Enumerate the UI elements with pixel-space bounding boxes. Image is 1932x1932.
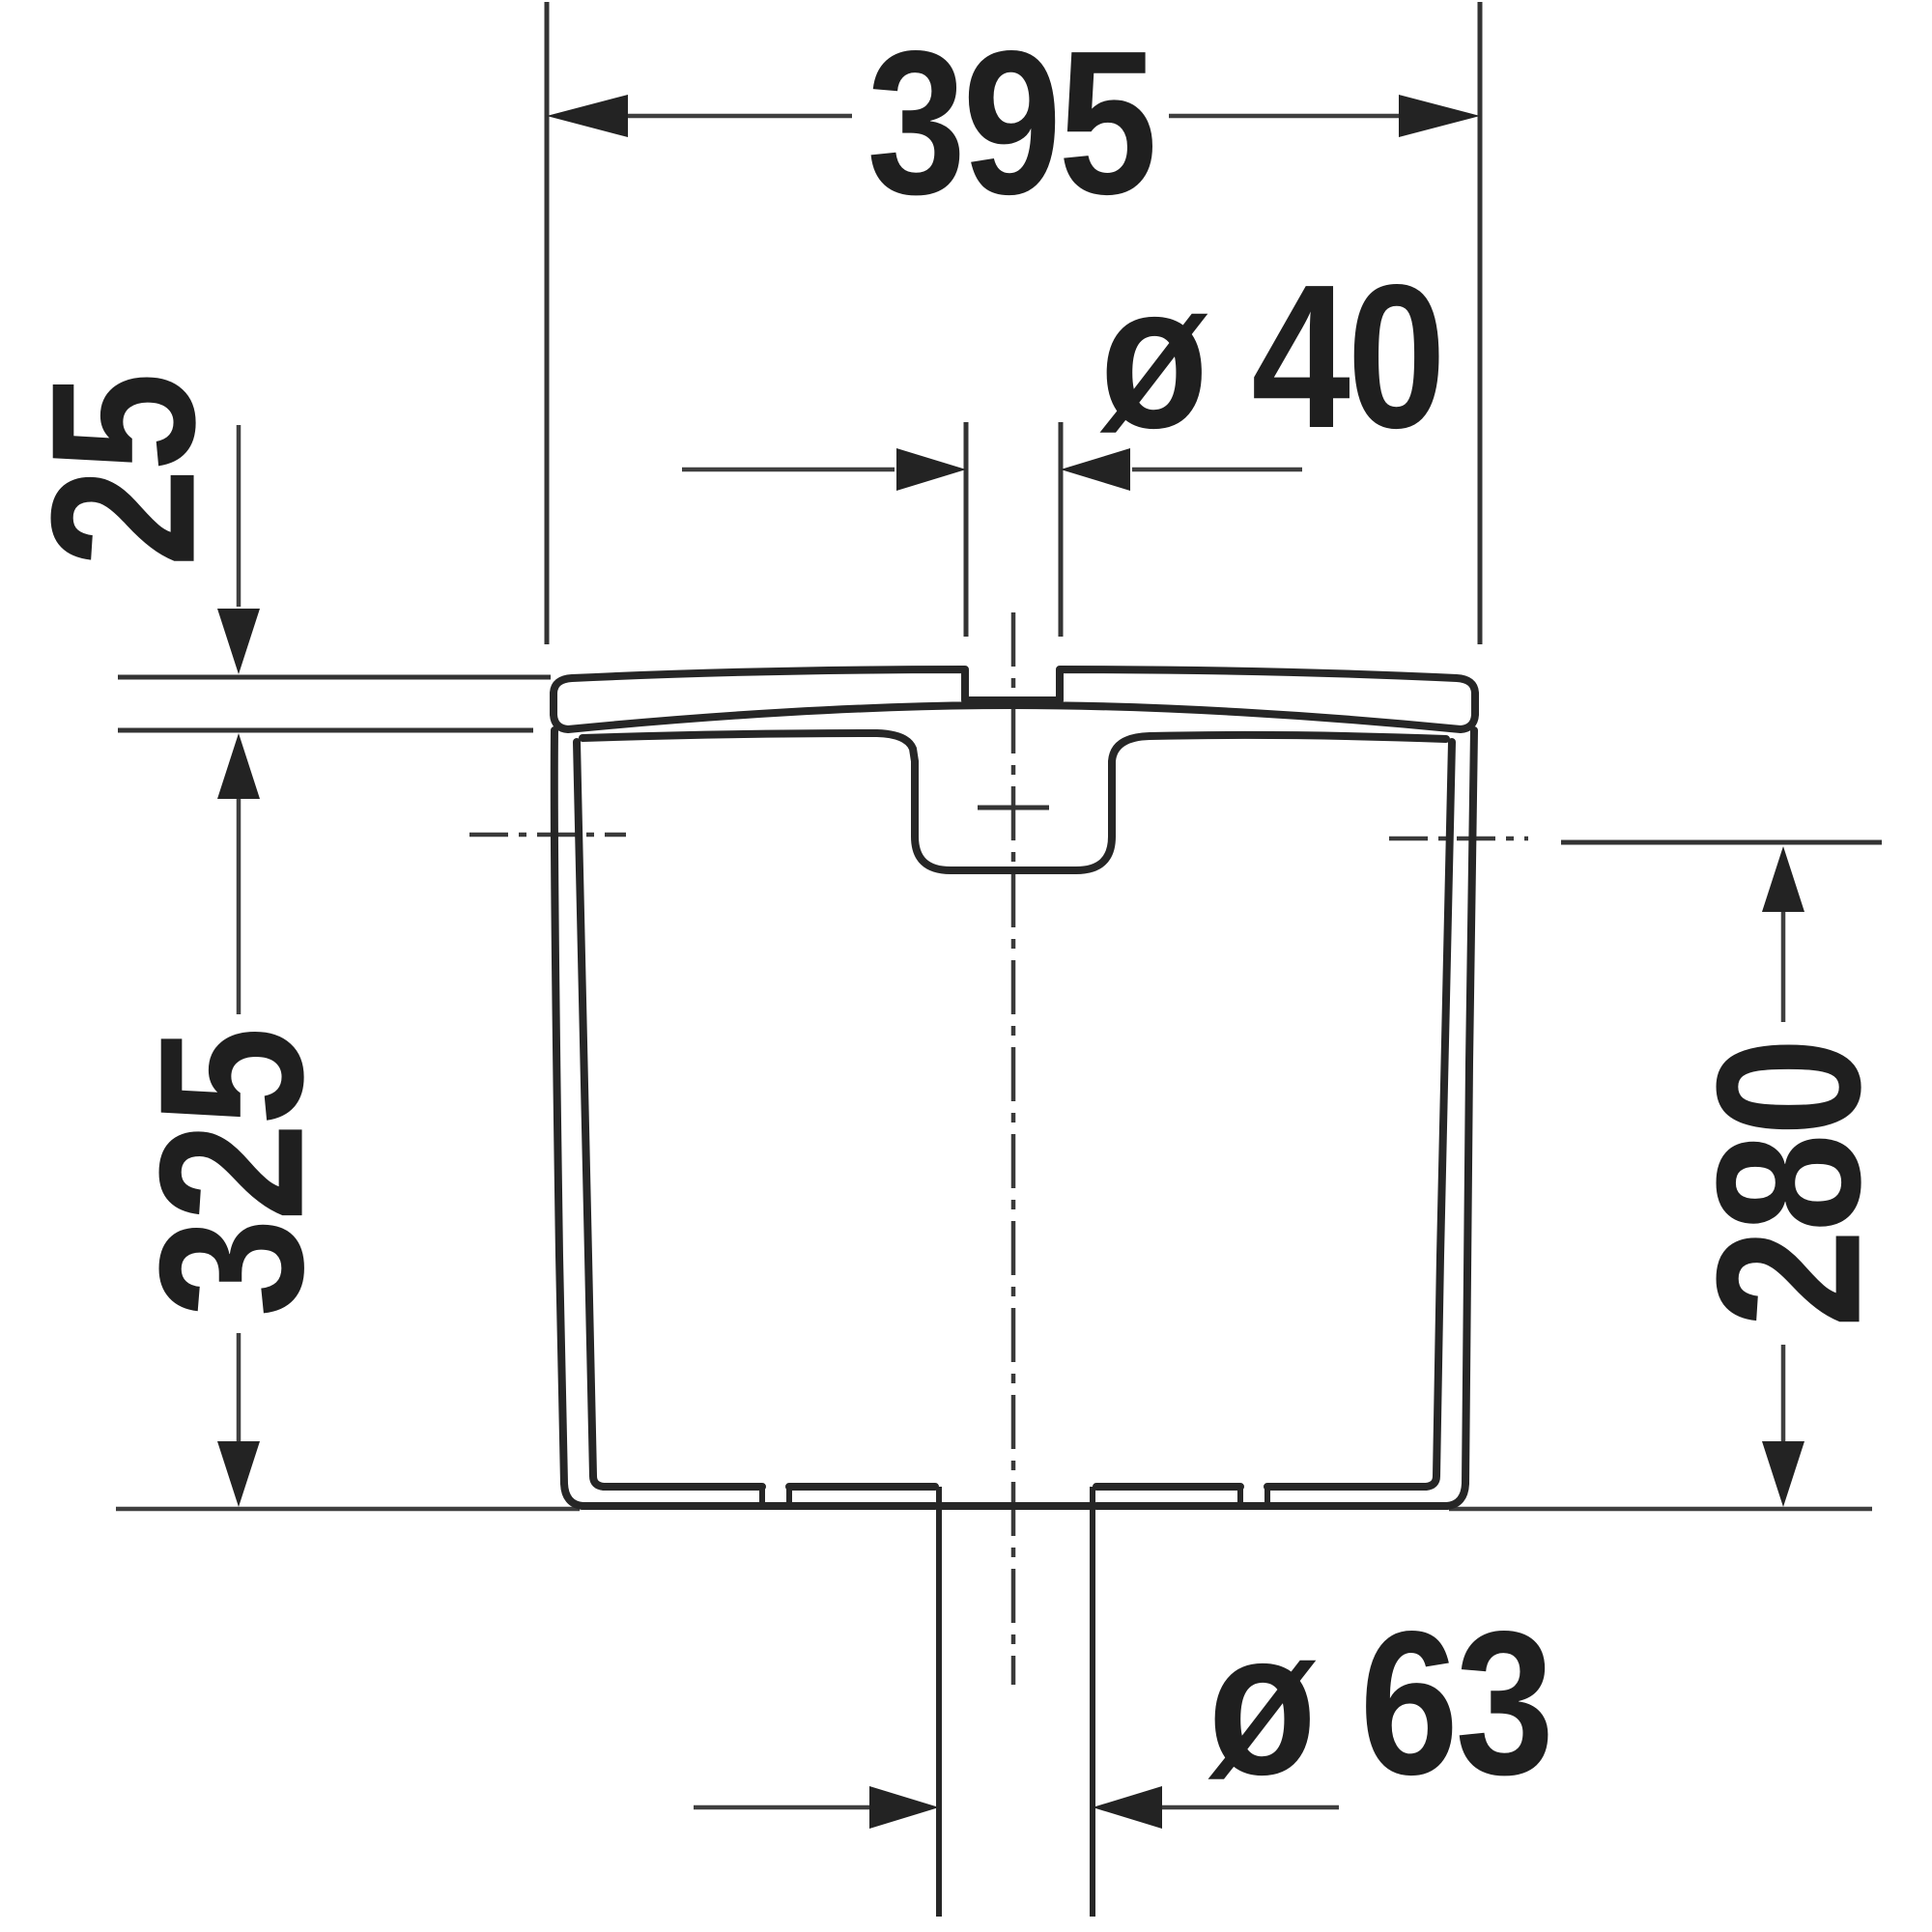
arrowhead-left-icon <box>1093 1786 1162 1829</box>
cistern-wall-right <box>1426 730 1474 1506</box>
arrowhead-left-icon <box>547 95 628 137</box>
dimension-side-height: 280 <box>469 835 1903 1507</box>
dim-side-height-label: 280 <box>1675 1040 1904 1327</box>
drawing-sheet: 395 ø 40 25 325 280 <box>0 0 1932 1932</box>
dimension-total-height: 325 <box>118 799 347 1507</box>
cistern-wall-left <box>554 730 604 1506</box>
dim-lid-inlet-label: ø 40 <box>1099 242 1442 471</box>
arrowhead-right-icon <box>896 448 966 491</box>
flush-pipe <box>939 1487 1093 1917</box>
arrowhead-right-icon <box>1399 95 1480 137</box>
dim-top-width-label: 395 <box>867 9 1153 238</box>
dimension-lid-inlet: ø 40 <box>682 242 1443 637</box>
arrowhead-up-icon <box>1762 846 1804 912</box>
dim-lid-height-label: 25 <box>10 376 239 567</box>
dim-bottom-outlet-label: ø 63 <box>1207 1589 1550 1818</box>
arrowhead-down-icon <box>217 1441 260 1507</box>
arrowhead-down-icon <box>1762 1441 1804 1507</box>
technical-drawing-canvas: 395 ø 40 25 325 280 <box>0 0 1932 1932</box>
arrowhead-right-icon <box>869 1786 939 1829</box>
arrowhead-up-icon <box>217 733 260 799</box>
dim-total-height-label: 325 <box>118 1030 347 1317</box>
dimension-bottom-outlet: ø 63 <box>694 1589 1551 1829</box>
dimension-lid-height: 25 <box>10 376 551 799</box>
arrowhead-down-icon <box>217 609 260 674</box>
